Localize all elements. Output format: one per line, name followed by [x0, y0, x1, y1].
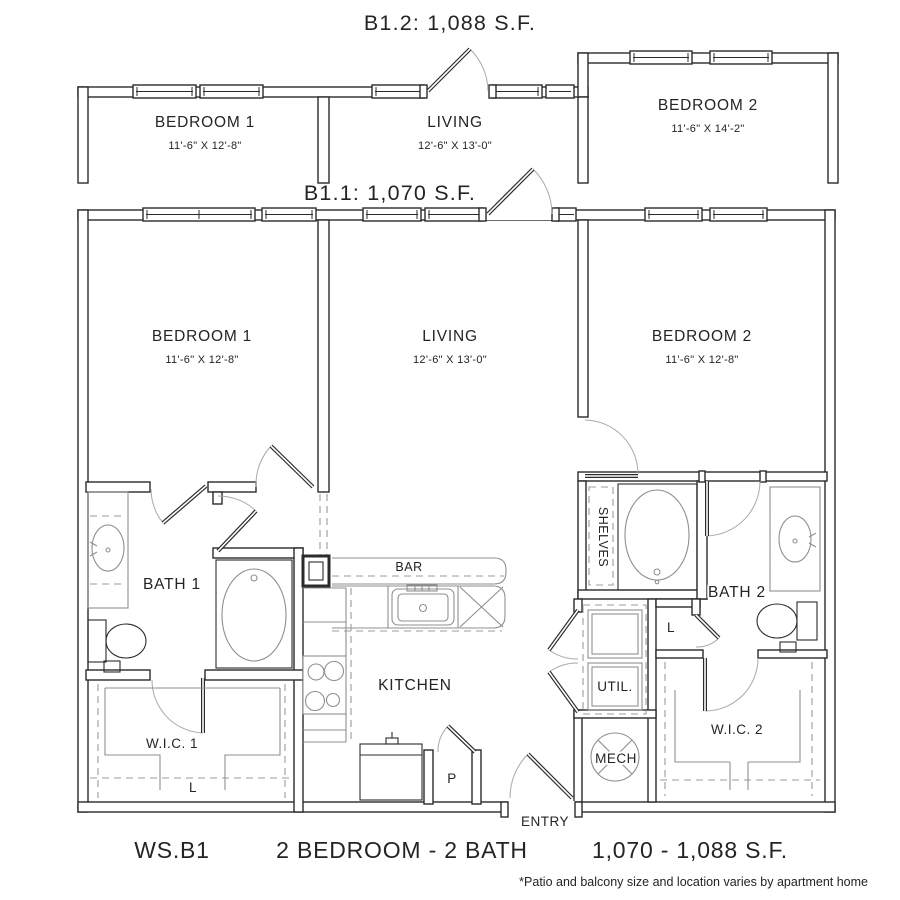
bath2-door [707, 481, 760, 536]
linen2-door [696, 615, 719, 647]
bedroom1-door [256, 446, 313, 487]
bath1-vanity-sink [88, 492, 128, 608]
plan-area-range: 1,070 - 1,088 S.F. [592, 837, 788, 863]
plan-b11: BEDROOM 1 11'-6" X 12'-8" LIVING 12'-6" … [78, 169, 835, 829]
b11-living-label: LIVING [422, 328, 478, 345]
linen2-label: L [667, 620, 675, 635]
bath2-vanity-sink [770, 487, 820, 591]
shelves-label: SHELVES [596, 507, 610, 567]
kitchen-label: KITCHEN [378, 677, 452, 694]
util-double-doors [549, 610, 578, 712]
entry-door [501, 754, 582, 817]
pantry-label: P [447, 771, 457, 786]
footer: WS.B1 2 BEDROOM - 2 BATH 1,070 - 1,088 S… [134, 837, 868, 889]
disclaimer: *Patio and balcony size and location var… [519, 875, 868, 889]
pantry-door [438, 726, 475, 752]
util-washer-dryer [583, 605, 646, 714]
bath1-door [151, 486, 206, 523]
b11-labels: BEDROOM 1 11'-6" X 12'-8" LIVING 12'-6" … [143, 328, 766, 829]
bath1-vestibule-door [218, 496, 256, 551]
wic2-label: W.I.C. 2 [711, 722, 763, 737]
bar-label: BAR [395, 560, 422, 574]
wic2-door [705, 658, 758, 711]
bath2-label: BATH 2 [708, 584, 766, 601]
b11-bedroom1-label: BEDROOM 1 [152, 328, 252, 345]
wic1-door [152, 678, 203, 733]
bath2-toilet [757, 602, 817, 652]
bath2-door-jamb [699, 471, 705, 482]
bath2-tub [618, 484, 697, 590]
b12-bedroom2-dims: 11'-6" X 14'-2" [671, 123, 744, 135]
bath1-label: BATH 1 [143, 576, 201, 593]
floor-plan: B1.2: 1,088 S.F. B1.1: 1,070 S.F. [0, 0, 900, 900]
b12-bedroom2-label: BEDROOM 2 [658, 97, 758, 114]
b11-windows [143, 208, 767, 221]
b11-patio-door [479, 169, 559, 221]
bath2-door-jamb [760, 471, 766, 482]
linen1-label: L [189, 780, 197, 795]
plan-b12-title: B1.2: 1,088 S.F. [364, 11, 536, 35]
bath1-toilet [88, 620, 146, 672]
bath1-tub [216, 560, 292, 668]
util-label: UTIL. [597, 679, 633, 694]
wic1-label: W.I.C. 1 [146, 736, 198, 751]
b11-bedroom2-label: BEDROOM 2 [652, 328, 752, 345]
range-stove [303, 656, 346, 714]
b12-patio-door [420, 49, 496, 98]
b12-living-dims: 12'-6" X 13'-0" [418, 140, 492, 152]
refrigerator [360, 732, 422, 800]
b12-bedroom1-label: BEDROOM 1 [155, 114, 255, 131]
b12-living-label: LIVING [427, 114, 483, 131]
mech-label: MECH [595, 751, 637, 766]
bedroom2-door [585, 420, 638, 476]
b11-bedroom2-dims: 11'-6" X 12'-8" [665, 354, 738, 366]
b11-living-dims: 12'-6" X 13'-0" [413, 354, 487, 366]
plan-type: 2 BEDROOM - 2 BATH [276, 837, 528, 863]
b12-labels: BEDROOM 1 11'-6" X 12'-8" LIVING 12'-6" … [155, 97, 758, 152]
b12-bedroom1-dims: 11'-6" X 12'-8" [168, 140, 241, 152]
ceiling-break-lines [320, 494, 327, 556]
plan-code: WS.B1 [134, 837, 210, 863]
dishwasher [460, 587, 503, 627]
b11-bedroom1-dims: 11'-6" X 12'-8" [165, 354, 238, 366]
entry-label: ENTRY [521, 814, 569, 829]
plan-b12: BEDROOM 1 11'-6" X 12'-8" LIVING 12'-6" … [78, 49, 838, 183]
bar-pier [303, 556, 329, 586]
plan-b11-title: B1.1: 1,070 S.F. [304, 181, 476, 205]
kitchen-sink [392, 585, 454, 625]
